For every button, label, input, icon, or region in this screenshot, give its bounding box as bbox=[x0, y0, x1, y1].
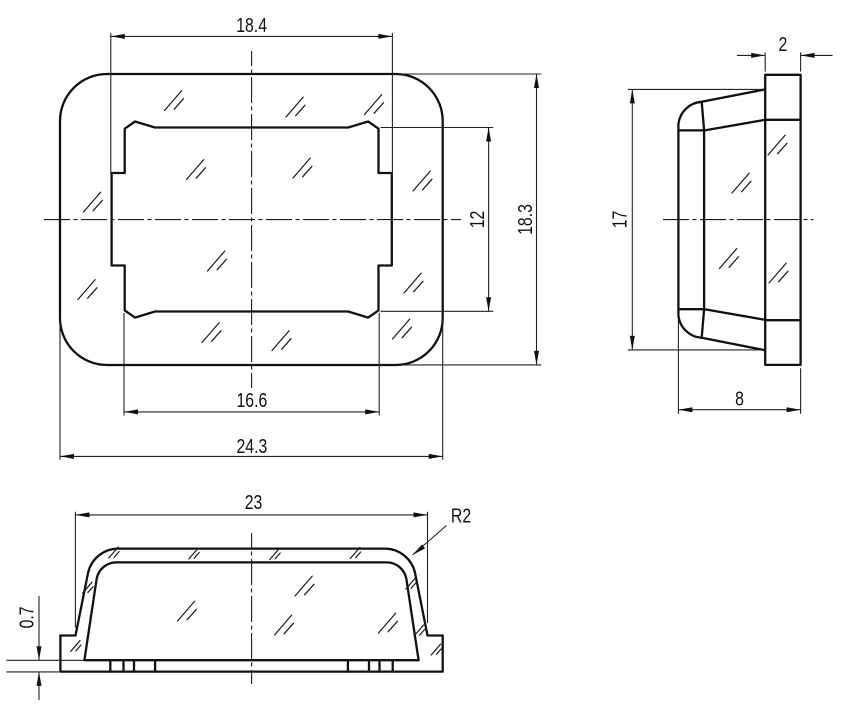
svg-text:2: 2 bbox=[778, 33, 787, 55]
svg-text:17: 17 bbox=[609, 211, 631, 229]
svg-text:18.4: 18.4 bbox=[236, 14, 267, 36]
svg-text:24.3: 24.3 bbox=[237, 435, 268, 457]
svg-text:16.6: 16.6 bbox=[237, 389, 268, 411]
svg-text:R2: R2 bbox=[451, 504, 471, 526]
svg-text:23: 23 bbox=[245, 491, 263, 513]
svg-text:12: 12 bbox=[466, 211, 488, 229]
svg-text:8: 8 bbox=[735, 387, 744, 409]
svg-text:0.7: 0.7 bbox=[16, 606, 38, 628]
svg-text:18.3: 18.3 bbox=[514, 204, 536, 235]
